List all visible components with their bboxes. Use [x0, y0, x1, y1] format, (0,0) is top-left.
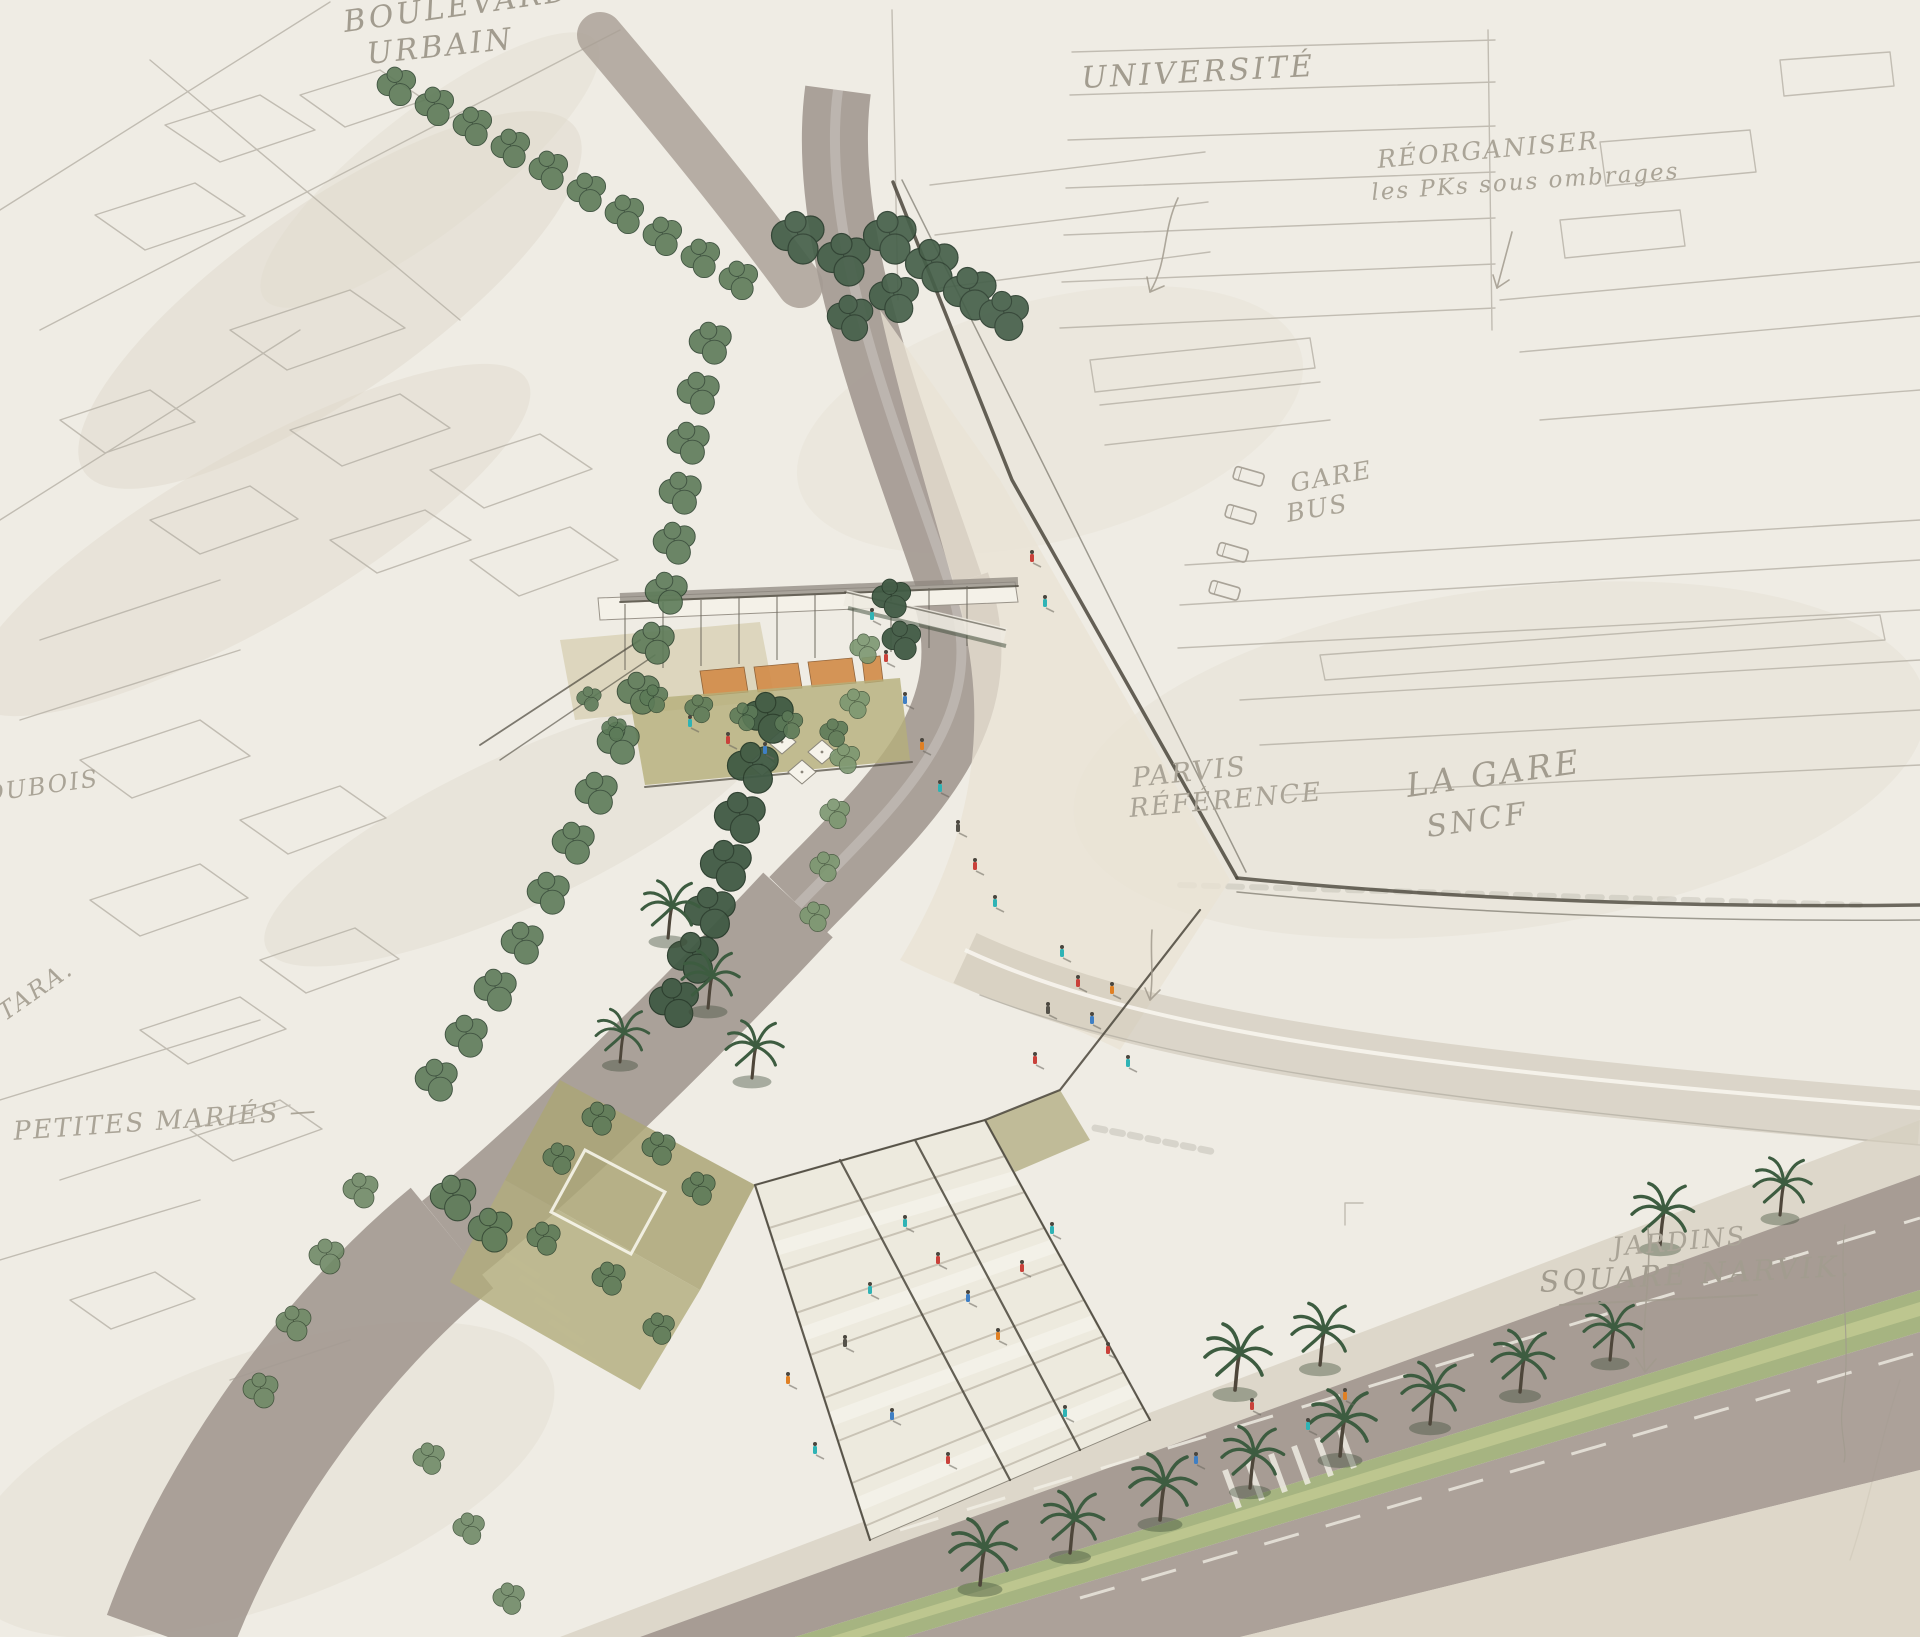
sketch-page: BOULEVARD URBAIN UNIVERSITÉ RÉORGANISER …	[0, 0, 1920, 1637]
sketch-canvas: BOULEVARD URBAIN UNIVERSITÉ RÉORGANISER …	[0, 0, 1920, 1637]
